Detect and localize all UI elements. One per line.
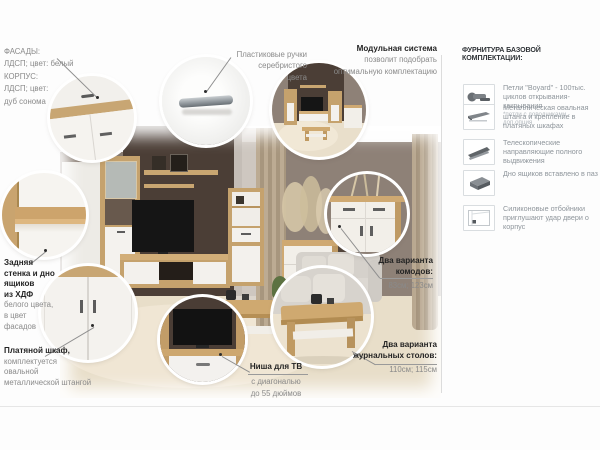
handle <box>360 226 363 236</box>
hardware-item: Дно ящиков вставлено в паз <box>463 170 598 196</box>
wall-shelf-lower <box>144 184 194 188</box>
handle <box>241 233 251 235</box>
callout-line: Пластиковые ручки <box>213 49 307 60</box>
table-decor <box>226 290 236 300</box>
callout-line: фасадов <box>4 322 94 333</box>
callout-line: позволит подобрать <box>317 54 437 65</box>
hardware-item-text: Силиконовые отбойники приглушают удар дв… <box>503 204 589 231</box>
callout-title: журнальных столов: <box>347 351 437 362</box>
handle <box>196 363 210 366</box>
hardware-item: Силиконовые отбойники приглушают удар дв… <box>463 205 598 231</box>
curtain-drape-right <box>412 134 438 330</box>
hardware-item: Телескопические направляющие полного выд… <box>463 139 598 165</box>
callout-line: оптимальную комплектацию <box>317 66 437 77</box>
hardware-panel-title: ФУРНИТУРА БАЗОВОЙ КОМПЛЕКТАЦИИ: <box>462 46 599 62</box>
callout-handles: Пластиковые ручки серебристого цвета <box>213 49 307 83</box>
callout-line: в цвет <box>4 311 94 322</box>
hardware-item-text: Телескопические направляющие полного выд… <box>503 138 582 165</box>
callout-line: с диагональю <box>240 376 312 387</box>
stand-door <box>193 262 226 284</box>
hardware-item: Металлическая овальная штанга и креплени… <box>463 104 598 130</box>
callout-title: стенка и дно <box>4 269 94 280</box>
open-shelf <box>105 199 135 225</box>
photo-frame <box>152 156 166 170</box>
callout-commodes: Два варианта комодов: 83см; 123см <box>353 256 433 292</box>
callout-title: Задняя <box>4 258 94 269</box>
handle <box>343 208 355 211</box>
callout-line: цвета <box>213 72 307 83</box>
drawer-bottom-icon <box>463 170 495 196</box>
tv <box>132 200 194 252</box>
tv-stand <box>120 254 230 288</box>
tv <box>173 309 232 345</box>
glass-door <box>105 161 137 199</box>
photo-frame <box>170 154 188 172</box>
drawer <box>232 228 260 242</box>
shelf-rod-icon <box>463 104 495 130</box>
stand-niche <box>159 262 193 280</box>
oak-side <box>160 297 169 382</box>
callout-title: Платяной шкаф, <box>4 346 98 357</box>
callout-line: серебристого <box>213 60 307 71</box>
leader-dot <box>338 225 341 228</box>
callout-circle-back-panel <box>2 173 86 257</box>
callout-line: до 55 дюймов <box>240 388 312 399</box>
callout-title: Ниша для ТВ <box>240 361 312 372</box>
callout-wardrobe: Платяной шкаф, комплектуется овальной ме… <box>4 346 98 388</box>
callout-line: комплектуется <box>4 357 98 368</box>
callout-line: КОРПУС: <box>4 71 96 83</box>
door <box>232 246 260 282</box>
callout-line: металлической штангой <box>4 378 98 389</box>
plastic-handle <box>179 95 233 108</box>
leader-dot <box>96 96 99 99</box>
mid-cabinet <box>228 188 264 286</box>
product-infographic: ФАСАДЫ: ЛДСП; цвет: белый КОРПУС: ЛДСП; … <box>0 0 600 450</box>
callout-title: Два варианта <box>347 340 437 351</box>
oak-side <box>395 202 401 252</box>
horizontal-divider <box>0 406 600 407</box>
leader-dot <box>204 90 207 93</box>
callout-facades: ФАСАДЫ: ЛДСП; цвет: белый КОРПУС: ЛДСП; … <box>4 46 96 108</box>
callout-line: ЛДСП; цвет: белый <box>4 58 96 70</box>
hardware-item-text: Металлическая овальная штанга и креплени… <box>503 103 589 130</box>
callout-line: ЛДСП; цвет: <box>4 83 96 95</box>
silicone-bumper-icon <box>463 205 495 231</box>
vertical-divider <box>441 55 442 393</box>
table-decor <box>311 294 322 304</box>
callout-line: овальной <box>4 367 98 378</box>
callout-back-panel: Задняя стенка и дно ящиков из ХДФ белого… <box>4 258 94 332</box>
hardware-item-text: Дно ящиков вставлено в паз <box>503 169 598 178</box>
callout-tv-niche: Ниша для ТВ с диагональю до 55 дюймов <box>240 361 312 399</box>
callout-title: комодов: <box>353 267 433 278</box>
callout-line: дуб сонома <box>4 96 96 108</box>
oak-shelf <box>15 207 86 219</box>
callout-modular-system: Модульная система позволит подобрать опт… <box>317 43 437 77</box>
table-decor <box>327 298 334 304</box>
callout-circle-tv-niche <box>160 297 245 382</box>
telescopic-slide-icon <box>463 139 495 165</box>
callout-title: Два варианта <box>353 256 433 267</box>
callout-line: ФАСАДЫ: <box>4 46 96 58</box>
callout-title: из ХДФ <box>4 290 94 301</box>
handle <box>373 208 385 211</box>
callout-line: белого цвета, <box>4 300 94 311</box>
handle <box>117 231 125 233</box>
leader-dot <box>44 249 47 252</box>
callout-value: 83см; 123см <box>353 281 433 292</box>
callout-value: 110см; 115см <box>347 365 437 376</box>
callout-title: ящиков <box>4 279 94 290</box>
handle <box>370 226 373 236</box>
callout-title: Модульная система <box>317 43 437 54</box>
callout-coffee-tables: Два варианта журнальных столов: 110см; 1… <box>347 340 437 376</box>
callout-circle-commode <box>327 174 407 254</box>
leader-dot <box>219 353 222 356</box>
table-shelf <box>293 328 353 339</box>
